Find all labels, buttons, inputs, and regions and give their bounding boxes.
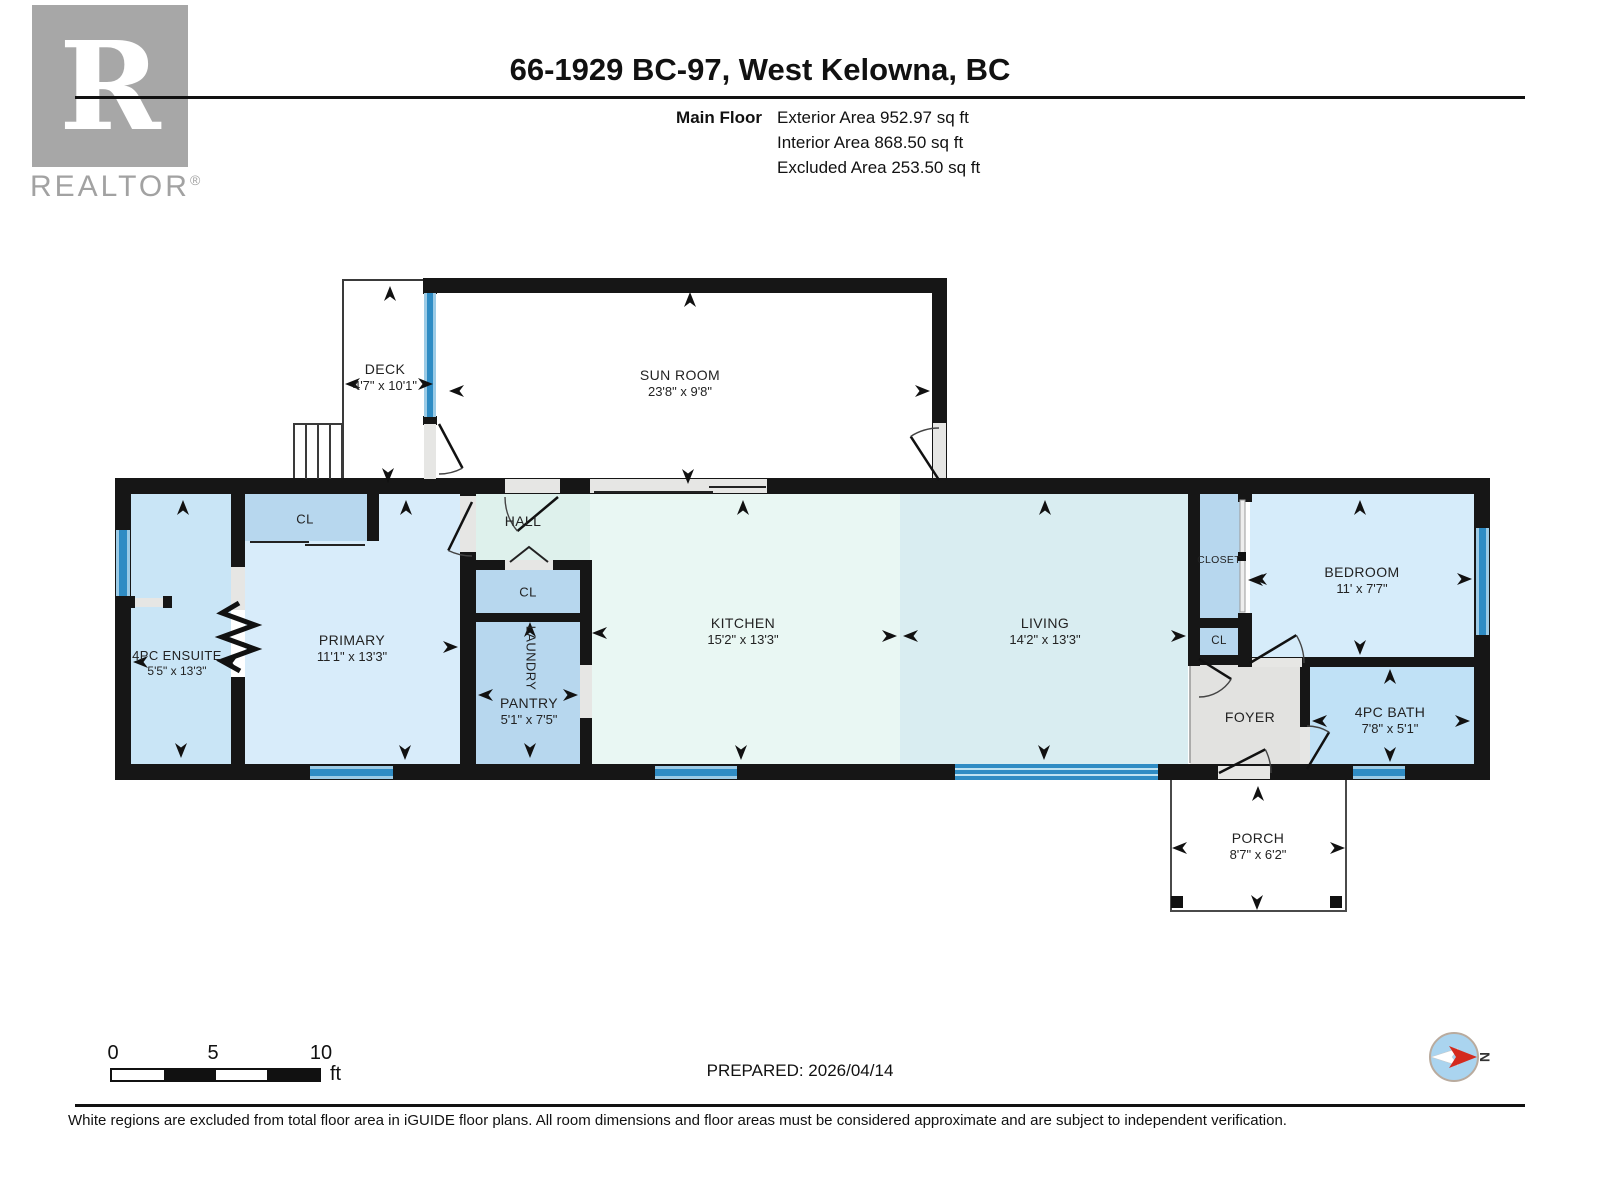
door-opening (505, 479, 560, 493)
floor-label: Main Floor (676, 108, 762, 128)
door-opening (580, 665, 592, 718)
room-label-primary-closet: CL (296, 512, 313, 527)
scale-unit: ft (330, 1063, 341, 1086)
page-title: 66-1929 BC-97, West Kelowna, BC (510, 52, 1011, 88)
wall (231, 677, 245, 764)
room-label-ensuite: 4PC ENSUITE5'5" x 13'3" (132, 648, 222, 678)
scale-tick-0: 0 (107, 1042, 118, 1065)
room-label-pantry: PANTRY5'1" x 7'5" (500, 695, 558, 727)
wall (231, 494, 245, 567)
room-label-laundry: LAUNDRY (524, 626, 539, 691)
door-opening (505, 560, 553, 570)
room-label-kitchen: KITCHEN15'2" x 13'3" (707, 615, 778, 647)
wall (1238, 494, 1252, 502)
wall-gap (231, 610, 245, 677)
scale-tick-5: 5 (207, 1042, 218, 1065)
scale-bar (110, 1068, 321, 1082)
wall (115, 478, 1490, 494)
door-leaf-icon (439, 424, 463, 468)
realtor-wordmark-text: REALTOR (30, 170, 190, 203)
dimension-arrow-icon (915, 385, 930, 397)
door-opening (424, 424, 436, 479)
compass-icon (1430, 1033, 1478, 1081)
window (1476, 528, 1489, 635)
compass-north-label: N (1477, 1052, 1493, 1062)
porch-post (1171, 896, 1183, 908)
door-opening (1300, 727, 1310, 764)
wall (115, 478, 131, 780)
window (1353, 766, 1405, 779)
wall (163, 596, 172, 608)
window (424, 293, 436, 417)
wall (367, 494, 379, 541)
wall (423, 278, 437, 294)
footer-divider (75, 1104, 1525, 1107)
room-label-hall: HALL (505, 513, 542, 529)
realtor-logo: R (32, 5, 188, 167)
wall (460, 613, 592, 622)
registered-trademark-symbol: ® (190, 172, 203, 188)
scale-tick-10: 10 (310, 1042, 332, 1065)
wall (580, 560, 592, 764)
disclaimer-text: White regions are excluded from total fl… (68, 1112, 1287, 1129)
prepared-date: PREPARED: 2026/04/14 (707, 1061, 894, 1081)
wall (423, 278, 947, 293)
door-opening (460, 496, 476, 552)
dimension-arrow-icon (449, 385, 464, 397)
wall (1188, 494, 1200, 666)
room-label-foyer: FOYER (1225, 709, 1275, 725)
realtor-wordmark: REALTOR® (30, 170, 203, 204)
room-label-porch: PORCH8'7" x 6'2" (1230, 830, 1287, 862)
room-label-sunroom: SUN ROOM23'8" x 9'8" (640, 367, 720, 399)
dimension-arrow-icon (684, 292, 696, 307)
room-label-bedroom: BEDROOM11' x 7'7" (1324, 564, 1399, 596)
porch-post (1330, 896, 1342, 908)
door-opening (135, 598, 163, 607)
window (655, 766, 737, 779)
window (310, 766, 393, 779)
interior-area: Interior Area 868.50 sq ft (777, 133, 963, 153)
door-opening (1218, 766, 1270, 779)
room-label-living: LIVING14'2" x 13'3" (1009, 615, 1080, 647)
header-divider (75, 96, 1525, 99)
excluded-area: Excluded Area 253.50 sq ft (777, 158, 980, 178)
door-opening (231, 567, 245, 610)
room-label-foyer-closet: CL (1211, 635, 1227, 647)
room-label-deck: DECK4'7" x 10'1" (353, 361, 417, 393)
room-fill-ensuite (131, 494, 231, 764)
exterior-area: Exterior Area 952.97 sq ft (777, 108, 969, 128)
door-opening (1252, 658, 1302, 667)
deck-stairs (293, 423, 343, 480)
realtor-logo-r-icon: R (59, 25, 160, 147)
room-label-hall-closet: CL (519, 585, 536, 600)
window (955, 764, 1158, 780)
door-swing-arc-icon (439, 468, 463, 474)
window (116, 530, 130, 596)
door-opening (590, 479, 767, 493)
room-label-primary: PRIMARY11'1" x 13'3" (317, 632, 387, 664)
room-label-bath: 4PC BATH7'8" x 5'1" (1355, 704, 1426, 736)
room-label-closet: CLOSET (1197, 554, 1241, 566)
floor-plan-page: R REALTOR® 66-1929 BC-97, West Kelowna, … (0, 0, 1600, 1200)
door-opening (933, 423, 946, 478)
wall (125, 596, 135, 608)
